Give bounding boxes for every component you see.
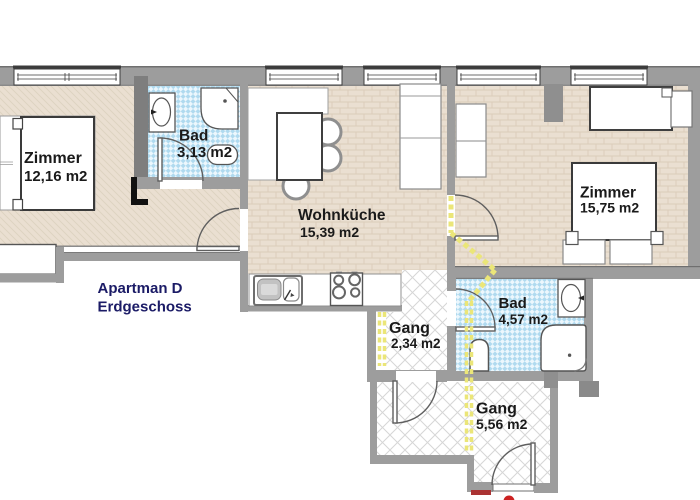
- svg-text:Wohnküche: Wohnküche: [298, 207, 386, 224]
- svg-text:Zimmer: Zimmer: [24, 150, 82, 167]
- svg-text:12,16 m2: 12,16 m2: [24, 168, 87, 185]
- svg-text:2,34 m2: 2,34 m2: [391, 336, 441, 351]
- svg-text:Bad: Bad: [499, 295, 527, 312]
- svg-text:15,39 m2: 15,39 m2: [300, 224, 359, 240]
- svg-text:3,13 m2: 3,13 m2: [177, 144, 232, 161]
- svg-text:15,75 m2: 15,75 m2: [580, 200, 639, 216]
- svg-text:Apartman D: Apartman D: [98, 280, 183, 297]
- svg-text:Gang: Gang: [389, 320, 430, 337]
- svg-text:4,57 m2: 4,57 m2: [499, 312, 549, 327]
- svg-text:Gang: Gang: [476, 401, 517, 418]
- svg-text:5,56 m2: 5,56 m2: [476, 416, 528, 432]
- svg-text:Erdgeschoss: Erdgeschoss: [98, 299, 192, 316]
- svg-text:Bad: Bad: [179, 128, 208, 145]
